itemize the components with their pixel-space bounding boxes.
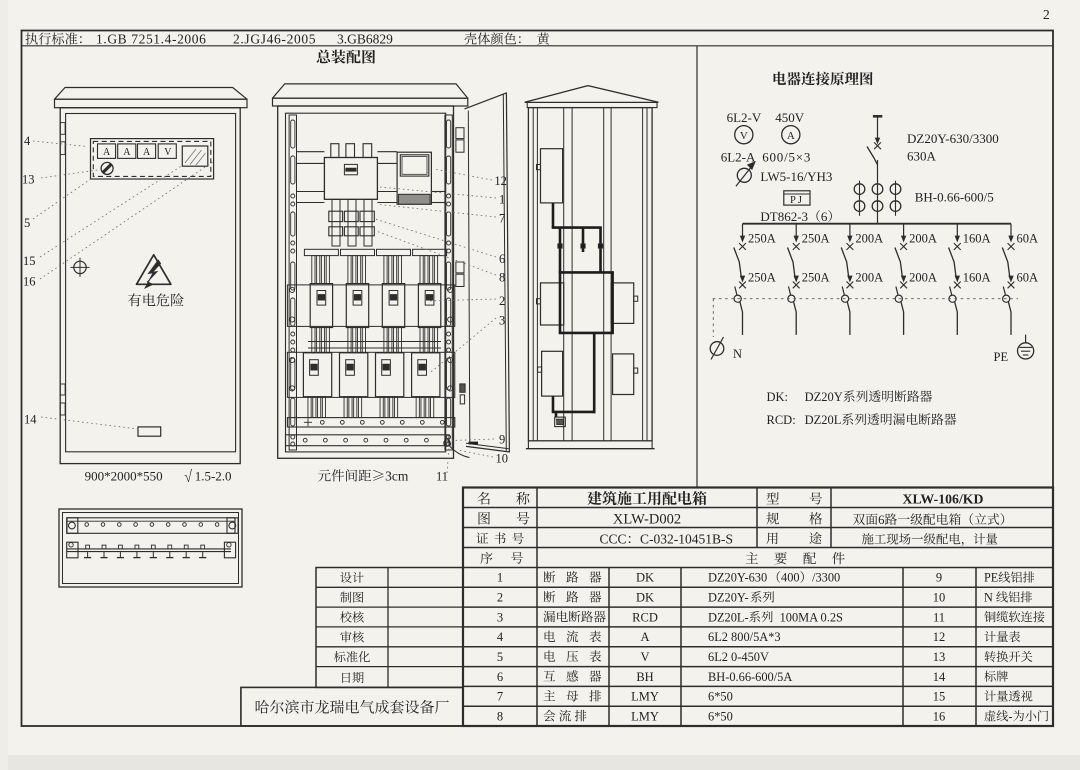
svg-text:15: 15 <box>23 254 36 268</box>
svg-text:12: 12 <box>494 174 507 188</box>
svg-text:10: 10 <box>933 591 946 605</box>
svg-text:DK: DK <box>636 591 654 605</box>
svg-text:RCD: RCD <box>632 610 658 624</box>
svg-text:-: - <box>1008 709 1012 723</box>
svg-text:600/5×3: 600/5×3 <box>762 150 811 165</box>
svg-text:DK:: DK: <box>767 390 789 404</box>
svg-text:6: 6 <box>499 252 505 266</box>
svg-text:2: 2 <box>1043 7 1050 22</box>
svg-text:XLW-106/KD: XLW-106/KD <box>902 492 983 507</box>
svg-text:250A: 250A <box>802 231 830 245</box>
svg-text:N: N <box>984 591 996 605</box>
svg-text:6L2-A: 6L2-A <box>721 150 756 165</box>
svg-text:160A: 160A <box>963 271 991 285</box>
svg-text:100MA 0.2S: 100MA 0.2S <box>773 610 843 624</box>
svg-text:160A: 160A <box>963 231 991 245</box>
svg-text:DZ20Y-: DZ20Y- <box>708 591 749 605</box>
svg-text:N: N <box>733 347 742 361</box>
svg-text:15: 15 <box>933 690 946 704</box>
svg-text:6L2 800/5A*3: 6L2 800/5A*3 <box>708 630 781 644</box>
svg-text:1: 1 <box>497 571 503 585</box>
svg-text:PJ: PJ <box>790 195 804 206</box>
svg-text:250A: 250A <box>748 231 776 245</box>
svg-text:13: 13 <box>22 173 35 187</box>
svg-text:A: A <box>143 147 151 158</box>
svg-text:3.GB6829: 3.GB6829 <box>337 32 393 47</box>
svg-text:6*50: 6*50 <box>708 709 733 723</box>
svg-text:16: 16 <box>933 709 946 723</box>
svg-text:BH: BH <box>636 670 653 684</box>
svg-text:6: 6 <box>821 209 828 224</box>
svg-text:9: 9 <box>499 433 505 447</box>
svg-text:10: 10 <box>496 452 509 466</box>
svg-text:3cm: 3cm <box>385 469 409 484</box>
svg-text:14: 14 <box>24 413 37 427</box>
svg-text:LW5-16/YH3: LW5-16/YH3 <box>760 169 832 184</box>
svg-text:1: 1 <box>499 193 505 207</box>
svg-text:DZ20Y-630/3300: DZ20Y-630/3300 <box>907 131 999 146</box>
svg-text:RCD:: RCD: <box>767 413 796 427</box>
svg-text:BH-0.66-600/5A: BH-0.66-600/5A <box>708 670 792 684</box>
svg-text:11: 11 <box>436 470 448 484</box>
svg-text:DZ20L: DZ20L <box>805 413 842 427</box>
svg-text:DT862-3: DT862-3 <box>760 209 808 224</box>
svg-text:6L2 0-450V: 6L2 0-450V <box>708 650 769 664</box>
svg-text:LMY: LMY <box>631 709 659 723</box>
svg-text:6L2-V: 6L2-V <box>727 110 762 125</box>
svg-text:200A: 200A <box>855 271 883 285</box>
svg-text:12: 12 <box>933 630 946 644</box>
svg-text:13: 13 <box>933 650 946 664</box>
svg-text:200A: 200A <box>909 271 937 285</box>
svg-text:7: 7 <box>499 212 505 226</box>
svg-text:/3300: /3300 <box>812 571 840 585</box>
svg-text:6: 6 <box>878 513 885 527</box>
svg-text:3: 3 <box>499 314 505 328</box>
svg-text:6*50: 6*50 <box>708 690 733 704</box>
svg-text:4: 4 <box>24 134 31 148</box>
svg-text:6: 6 <box>497 670 503 684</box>
svg-text:8: 8 <box>499 271 505 285</box>
svg-text:14: 14 <box>933 670 946 684</box>
svg-text:V: V <box>640 650 649 664</box>
svg-text:630A: 630A <box>907 149 937 164</box>
svg-text:DZ20Y: DZ20Y <box>805 390 843 404</box>
svg-text:A: A <box>123 147 131 158</box>
svg-text:1.5-2.0: 1.5-2.0 <box>195 469 232 484</box>
svg-text:C-032-10451B-S: C-032-10451B-S <box>640 532 733 547</box>
svg-text:1.GB 7251.4-2006: 1.GB 7251.4-2006 <box>96 32 206 47</box>
svg-text:A: A <box>103 147 111 158</box>
svg-text:2: 2 <box>497 591 503 605</box>
svg-text:400: 400 <box>781 571 800 585</box>
svg-text:LMY: LMY <box>631 690 659 704</box>
svg-text:V: V <box>740 130 748 142</box>
svg-text:2: 2 <box>499 294 505 308</box>
svg-text:7: 7 <box>497 690 503 704</box>
svg-text:V: V <box>164 147 172 158</box>
svg-text:200A: 200A <box>909 231 937 245</box>
svg-text:A: A <box>640 630 649 644</box>
svg-text:11: 11 <box>933 610 945 624</box>
svg-text:DZ20Y-630: DZ20Y-630 <box>708 571 767 585</box>
svg-text:XLW-D002: XLW-D002 <box>613 512 681 528</box>
svg-text:2.JGJ46-2005: 2.JGJ46-2005 <box>233 32 316 47</box>
svg-text:200A: 200A <box>855 231 883 245</box>
svg-text:DZ20L-: DZ20L- <box>708 610 749 624</box>
svg-text:8: 8 <box>497 709 503 723</box>
svg-text:5: 5 <box>24 216 30 230</box>
svg-text:PE: PE <box>994 350 1009 364</box>
svg-text:250A: 250A <box>748 271 776 285</box>
svg-text:16: 16 <box>23 275 36 289</box>
svg-text:9: 9 <box>936 571 942 585</box>
svg-text:450V: 450V <box>775 110 805 125</box>
svg-text:900*2000*550: 900*2000*550 <box>85 469 163 484</box>
svg-text:PE: PE <box>984 571 998 585</box>
svg-text:CCC: CCC <box>600 532 627 547</box>
svg-text:60A: 60A <box>1017 231 1039 245</box>
svg-text:3: 3 <box>497 610 503 624</box>
svg-text:60A: 60A <box>1017 271 1039 285</box>
svg-text:A: A <box>787 130 795 142</box>
svg-text:250A: 250A <box>802 271 830 285</box>
svg-text:DK: DK <box>636 571 654 585</box>
svg-text:4: 4 <box>497 630 504 644</box>
svg-text:5: 5 <box>497 650 503 664</box>
svg-text:BH-0.66-600/5: BH-0.66-600/5 <box>915 190 994 205</box>
